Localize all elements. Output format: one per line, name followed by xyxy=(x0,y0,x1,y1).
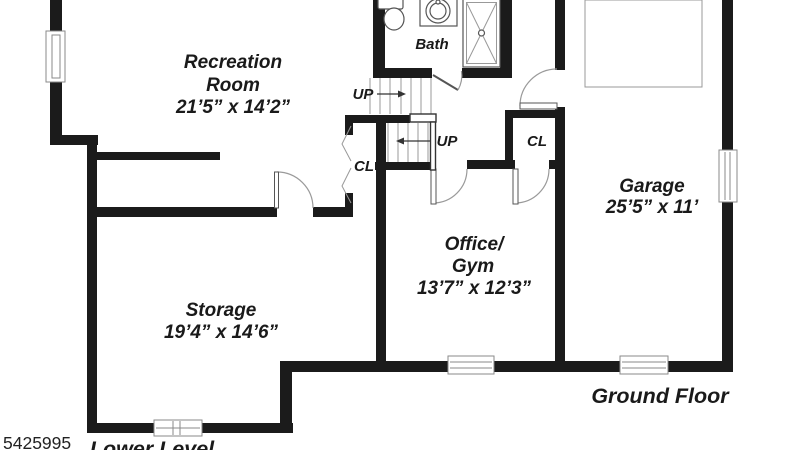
door-office xyxy=(431,169,467,204)
labels: Recreation Room 21’5” x 14’2” Bath UP UP… xyxy=(3,36,730,450)
wall-office-top-mid xyxy=(467,160,515,169)
floor-plan-drawing: Recreation Room 21’5” x 14’2” Bath UP UP… xyxy=(0,0,800,450)
window-office-south xyxy=(448,356,494,374)
sink-icon xyxy=(420,0,457,26)
lower-level-label: Lower Level xyxy=(90,437,215,450)
wall-stair-top xyxy=(345,115,410,123)
office-gym-label-line2: Gym xyxy=(452,256,494,277)
recreation-room-label-line1: Recreation xyxy=(184,52,282,73)
office-gym-label-line1: Office/ xyxy=(445,234,506,255)
recreation-room-dimensions: 21’5” x 14’2” xyxy=(175,97,291,118)
garage-label: Garage xyxy=(619,176,685,197)
wall-rec-partial xyxy=(97,152,220,160)
storage-dimensions: 19’4” x 14’6” xyxy=(164,322,279,343)
ground-floor-label: Ground Floor xyxy=(591,384,730,408)
closet-label-2: CL xyxy=(527,133,547,150)
shower-icon xyxy=(463,0,500,67)
wall-bath-left xyxy=(373,0,385,78)
door-closet2 xyxy=(513,169,549,204)
up-label-1: UP xyxy=(353,86,375,103)
bifold-doors-closet1 xyxy=(342,126,351,203)
bath-fixtures xyxy=(378,0,500,67)
wall-left-lower xyxy=(87,135,97,433)
window-garage-east xyxy=(719,150,737,202)
office-gym-dimensions: 13’7” x 12’3” xyxy=(417,278,532,299)
recreation-room-label-line2: Room xyxy=(206,75,260,96)
up-arrow-1 xyxy=(377,91,406,98)
wall-office-west xyxy=(376,123,386,361)
closet-label-1: CL xyxy=(354,158,374,175)
window-storage-south xyxy=(154,420,202,436)
wall-left-top xyxy=(50,0,62,34)
bath-label: Bath xyxy=(415,36,448,53)
door-bath xyxy=(433,71,462,90)
window-left-wall xyxy=(46,31,65,82)
floor-plan-page: Recreation Room 21’5” x 14’2” Bath UP UP… xyxy=(0,0,800,450)
doors xyxy=(275,69,558,208)
garage-dimensions: 25’5” x 11’ xyxy=(605,197,699,218)
windows xyxy=(46,31,737,436)
wall-garage-left-top xyxy=(555,0,565,70)
wall-closet2-top xyxy=(505,110,561,118)
window-garage-south xyxy=(620,356,668,374)
up-arrow-2 xyxy=(396,138,430,145)
storage-label: Storage xyxy=(186,300,257,321)
garage-door-outline xyxy=(585,0,702,87)
stair-rail xyxy=(410,114,436,122)
door-recreation xyxy=(275,172,314,208)
wall-garage-left xyxy=(555,107,565,361)
wall-closet1-stub-bottom xyxy=(345,193,353,217)
wall-hall-left xyxy=(97,207,277,217)
wall-office-top-stub xyxy=(549,160,561,169)
up-label-2: UP xyxy=(437,133,459,150)
door-garage xyxy=(520,69,557,109)
wall-bath-bottom-left xyxy=(373,68,432,78)
wall-bath-right xyxy=(500,0,512,72)
listing-number: 5425995 xyxy=(3,433,71,450)
